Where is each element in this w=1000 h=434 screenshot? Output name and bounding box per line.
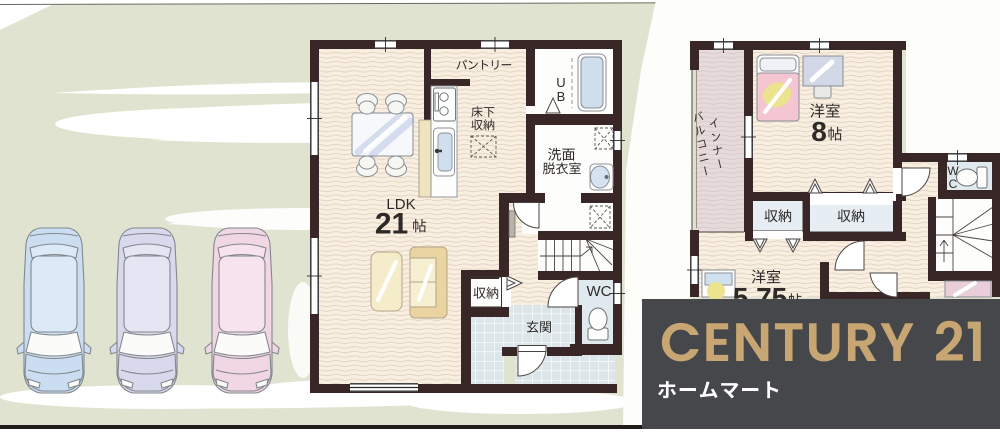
svg-text:C: C: [949, 177, 958, 191]
svg-text:21: 21: [375, 208, 408, 241]
svg-text:8: 8: [811, 116, 827, 147]
svg-text:W: W: [947, 164, 959, 178]
svg-text:WC: WC: [587, 283, 612, 300]
svg-text:B: B: [557, 89, 566, 104]
svg-text:U: U: [556, 75, 565, 90]
